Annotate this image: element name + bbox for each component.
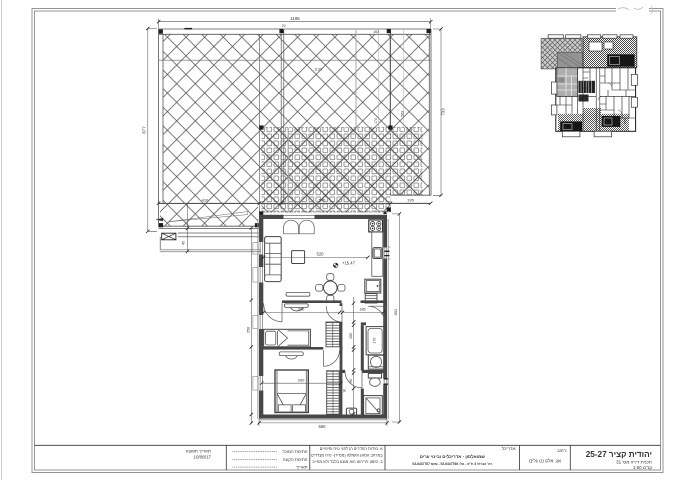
- svg-text:שמואלסון - אדריכלים ובינוי ערי: שמואלסון - אדריכלים ובינוי ערים: [420, 454, 486, 459]
- svg-text:חתימת המוכר: חתימת המוכר: [282, 449, 307, 454]
- svg-text:802: 802: [393, 308, 398, 315]
- svg-text:330: 330: [298, 307, 305, 312]
- svg-text:20: 20: [282, 24, 286, 28]
- svg-text:אג. אלפ נט גלים: אג. אלפ נט גלים: [529, 458, 561, 463]
- svg-text:תכנית דירה מס' 31: תכנית דירה מס' 31: [616, 459, 652, 464]
- svg-text:ב. סימון הריהוט הוא מוצע בלבד: ב. סימון הריהוט הוא מוצע בלבד ולא מחייב: [312, 459, 383, 464]
- svg-text:במרחב המוגן הושלמו (ממ"ד)- טיח: במרחב המוגן הושלמו (ממ"ד)- טיח מצדדים: [311, 453, 383, 458]
- svg-text:חתימת הקונה: חתימת הקונה: [283, 457, 308, 462]
- svg-text:90: 90: [342, 389, 346, 393]
- svg-text:אדריכל:: אדריכל:: [502, 446, 517, 451]
- svg-text:560: 560: [319, 424, 327, 429]
- svg-text:45: 45: [182, 241, 186, 245]
- svg-text:150: 150: [349, 333, 353, 339]
- svg-text:250: 250: [247, 327, 251, 333]
- svg-text:163: 163: [373, 30, 379, 34]
- svg-text:1133: 1133: [314, 68, 322, 72]
- svg-text:170: 170: [374, 118, 378, 124]
- svg-text:תאריך: תאריך: [296, 464, 307, 469]
- svg-text:רח' הברזל 3 ת"א - טל: 03-64477: רח' הברזל 3 ת"א - טל: 03-6447766 - פקס 0…: [412, 462, 492, 466]
- svg-text:יהודית קציר 25-27: יהודית קציר 25-27: [586, 450, 652, 459]
- svg-text:170: 170: [372, 338, 376, 344]
- svg-text:877: 877: [142, 126, 147, 134]
- svg-text:א. מידות החדרים הן לפני טיח וח: א. מידות החדרים הן לפני טיח וחיפויים: [320, 446, 383, 451]
- svg-text:תאריך תפוצה: תאריך תפוצה: [186, 448, 211, 453]
- svg-text:רחוב:: רחוב:: [557, 448, 567, 453]
- svg-text:195: 195: [407, 197, 414, 202]
- svg-text:90: 90: [349, 379, 353, 383]
- svg-text:קנ"מ 1:50: קנ"מ 1:50: [633, 465, 652, 470]
- svg-text:185: 185: [359, 308, 365, 312]
- svg-text:+15.47: +15.47: [342, 261, 356, 266]
- svg-text:520: 520: [317, 252, 325, 257]
- svg-text:10/08/17: 10/08/17: [193, 455, 211, 460]
- svg-text:733: 733: [441, 108, 446, 116]
- svg-text:330: 330: [298, 377, 305, 382]
- svg-text:410: 410: [202, 197, 209, 202]
- svg-text:1195: 1195: [290, 16, 300, 21]
- svg-text:540: 540: [319, 197, 326, 202]
- svg-text:583: 583: [400, 111, 404, 117]
